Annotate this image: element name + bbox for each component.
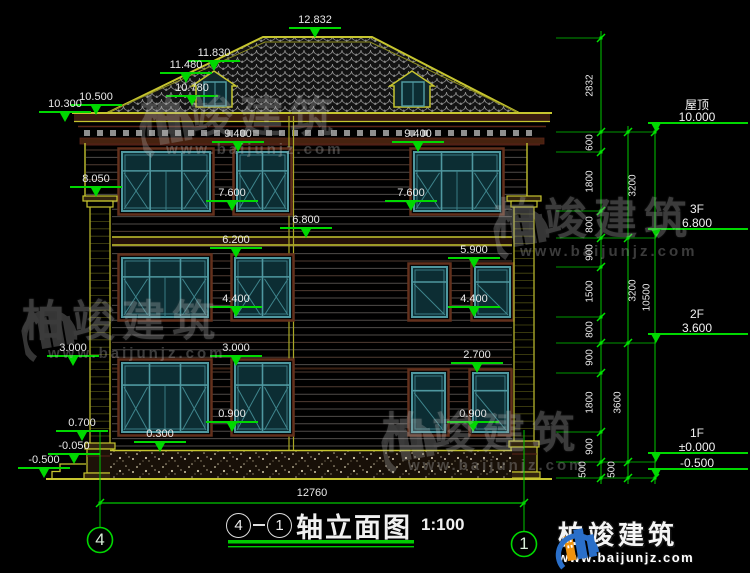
level-value: 0.900 [441, 408, 505, 421]
level-triangle-icon [231, 308, 241, 317]
chain-dimension: 500 [577, 435, 590, 505]
level-triangle-icon [68, 357, 78, 366]
floor-triangle-icon [651, 334, 661, 343]
level-value: 4.400 [442, 293, 506, 306]
level-line [188, 60, 240, 62]
level-line [447, 421, 499, 423]
title-axis-start-bubble: 4 [226, 513, 251, 538]
level-value: 4.400 [204, 293, 268, 306]
title-dash [253, 524, 265, 526]
level-value: -0.500 [12, 454, 76, 467]
level-value: 6.800 [274, 214, 338, 227]
watermark-text: 柏竣建筑 [382, 412, 585, 457]
overall-dimension: 12760 [267, 487, 357, 499]
level-value: 10.300 [33, 98, 97, 111]
level-line [210, 247, 262, 249]
drawing-title: 4 1 轴立面图 1:100 [226, 508, 464, 542]
level-line [280, 227, 332, 229]
level-triangle-icon [60, 113, 70, 122]
floor-triangle-icon [651, 123, 661, 132]
floor-level-line [648, 228, 748, 230]
level-marker: 10.780 [160, 82, 224, 106]
floor-level-line [648, 452, 748, 454]
level-triangle-icon [91, 188, 101, 197]
level-marker: 9.400 [206, 128, 270, 152]
level-triangle-icon [310, 29, 320, 38]
level-triangle-icon [39, 469, 49, 478]
watermark: 柏竣建筑www.baijunjz.com [22, 300, 225, 362]
floor-triangle-icon [651, 469, 661, 478]
level-marker: 7.600 [200, 187, 264, 211]
level-value: 9.400 [206, 128, 270, 141]
level-value: 7.600 [379, 187, 443, 200]
level-line [166, 95, 218, 97]
watermark-url: www.baijunjz.com [520, 243, 697, 260]
level-triangle-icon [77, 432, 87, 441]
level-triangle-icon [91, 106, 101, 115]
level-marker: 11.480 [154, 59, 218, 83]
level-marker: 3.000 [204, 342, 268, 366]
level-value: 3.000 [41, 342, 105, 355]
watermark: 柏竣建筑www.baijunjz.com [382, 412, 585, 474]
brand-logo: 柏竣建筑 www.baijunjz.com [552, 522, 694, 565]
level-triangle-icon [406, 202, 416, 211]
watermark-text: 柏竣建筑 [140, 96, 343, 141]
watermark-text: 柏竣建筑 [22, 300, 225, 345]
chain-dimension: 3200 [627, 256, 640, 326]
level-triangle-icon [227, 202, 237, 211]
level-line [448, 257, 500, 259]
level-line [70, 104, 122, 106]
level-marker: 4.400 [204, 293, 268, 317]
level-value: 0.300 [128, 428, 192, 441]
level-value: 10.500 [64, 91, 128, 104]
level-line [448, 306, 500, 308]
watermark: 柏竣建筑www.baijunjz.com [140, 96, 343, 158]
level-marker: 0.700 [50, 417, 114, 441]
level-value: 10.780 [160, 82, 224, 95]
level-line [206, 200, 258, 202]
floor-triangle-icon [651, 229, 661, 238]
level-line [212, 141, 264, 143]
level-line [70, 186, 122, 188]
elevation-drawing: 12.83211.83011.48010.78010.50010.3009.40… [0, 0, 750, 573]
level-value: 2.700 [445, 349, 509, 362]
level-value: 5.900 [442, 244, 506, 257]
level-value: 7.600 [200, 187, 264, 200]
level-triangle-icon [69, 455, 79, 464]
level-line [39, 111, 91, 113]
level-line [289, 27, 341, 29]
level-triangle-icon [468, 423, 478, 432]
level-value: 3.000 [204, 342, 268, 355]
level-marker: 0.900 [200, 408, 264, 432]
chain-dimension: 500 [606, 435, 619, 505]
level-triangle-icon [187, 97, 197, 106]
brand-logo-icon [548, 518, 604, 573]
level-marker: 5.900 [442, 244, 506, 268]
title-text: 轴立面图 [296, 506, 412, 545]
level-value: 0.900 [200, 408, 264, 421]
level-value: -0.050 [42, 440, 106, 453]
level-line [47, 355, 99, 357]
level-line [56, 430, 108, 432]
level-marker: 10.300 [33, 98, 97, 122]
level-triangle-icon [231, 249, 241, 258]
watermark-url: www.baijunjz.com [166, 141, 343, 158]
level-triangle-icon [181, 74, 191, 83]
level-triangle-icon [155, 443, 165, 452]
level-marker: 4.400 [442, 293, 506, 317]
level-line [206, 421, 258, 423]
level-line [210, 355, 262, 357]
level-marker: -0.500 [12, 454, 76, 478]
level-triangle-icon [413, 143, 423, 152]
level-value: 6.200 [204, 234, 268, 247]
level-line [451, 362, 503, 364]
level-marker: 10.500 [64, 91, 128, 115]
level-line [210, 306, 262, 308]
level-value: 0.700 [50, 417, 114, 430]
level-marker: 11.830 [182, 47, 246, 71]
level-marker: 0.900 [441, 408, 505, 432]
level-value: 8.050 [64, 173, 128, 186]
floor-name: 1F [647, 426, 747, 440]
floor-level-line [648, 333, 748, 335]
level-marker: 2.700 [445, 349, 509, 373]
level-line [392, 141, 444, 143]
floor-level-line [648, 122, 748, 124]
level-marker: 9.400 [386, 128, 450, 152]
level-value: 12.832 [283, 14, 347, 27]
level-marker: 7.600 [379, 187, 443, 211]
chain-dimension: 3600 [612, 368, 625, 438]
level-line [160, 72, 212, 74]
floor-level-line [648, 468, 748, 470]
level-triangle-icon [469, 308, 479, 317]
title-axis-end-bubble: 1 [267, 513, 292, 538]
level-line [134, 441, 186, 443]
level-triangle-icon [472, 364, 482, 373]
axis-number-1: 1 [510, 534, 538, 554]
floor-name: 3F [647, 202, 747, 216]
chain-dimension: 3200 [627, 151, 640, 221]
level-marker: -0.050 [42, 440, 106, 464]
level-triangle-icon [233, 143, 243, 152]
level-line [48, 453, 100, 455]
level-marker: 0.300 [128, 428, 192, 452]
level-marker: 3.000 [41, 342, 105, 366]
level-marker: 6.800 [274, 214, 338, 238]
floor-name: 2F [647, 307, 747, 321]
level-value: 11.480 [154, 59, 218, 72]
axis-number-4: 4 [86, 530, 114, 550]
level-triangle-icon [469, 259, 479, 268]
level-line [18, 467, 70, 469]
level-marker: 12.832 [283, 14, 347, 38]
level-value: 9.400 [386, 128, 450, 141]
level-triangle-icon [227, 423, 237, 432]
level-triangle-icon [301, 229, 311, 238]
level-value: 11.830 [182, 47, 246, 60]
level-triangle-icon [209, 62, 219, 71]
annotation-layer: 12.83211.83011.48010.78010.50010.3009.40… [0, 0, 750, 573]
watermark-url: www.baijunjz.com [48, 345, 225, 362]
level-triangle-icon [231, 357, 241, 366]
level-line [385, 200, 437, 202]
level-marker: 8.050 [64, 173, 128, 197]
level-marker: 6.200 [204, 234, 268, 258]
title-scale: 1:100 [421, 515, 464, 535]
watermark-url: www.baijunjz.com [408, 457, 585, 474]
